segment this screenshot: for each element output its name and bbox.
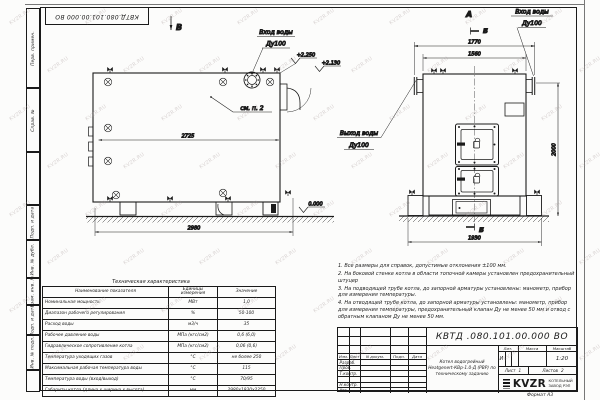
front-inlet-label: Вход воды bbox=[515, 9, 549, 16]
dim-front-body: 1560 bbox=[468, 52, 481, 58]
spec-cell: Температура уходящих газов bbox=[43, 353, 169, 364]
grid-line bbox=[338, 336, 426, 337]
spec-cell: 0,6 (6,0) bbox=[218, 331, 276, 342]
signature-row-label: Н.контр. bbox=[340, 382, 358, 387]
side-inlet-dn: Ду100 bbox=[265, 41, 286, 48]
grid-line bbox=[511, 351, 512, 366]
technical-notes: 1. Все размеры для справок, допустимые о… bbox=[338, 263, 578, 322]
spec-row: Температура уходящих газов°Сне более 250 bbox=[43, 353, 276, 364]
spec-cell: не более 250 bbox=[218, 353, 276, 364]
grid-line bbox=[498, 374, 578, 375]
note-item: 1. Все размеры для справок, допустимые о… bbox=[338, 263, 578, 270]
side-inlet-label: Вход воды bbox=[259, 29, 293, 36]
grid-line bbox=[408, 328, 409, 393]
spec-header-cell: Значение bbox=[218, 287, 276, 298]
grid-line bbox=[390, 328, 391, 393]
spec-cell: Температура воды (вход/выход) bbox=[43, 375, 169, 386]
spec-cell: Номинальная мощность bbox=[43, 298, 169, 309]
dim-side-inner: 2725 bbox=[182, 134, 195, 140]
titleblock-doc-number: КВТД .080.101.00.000 ВО bbox=[426, 328, 578, 345]
grid-line bbox=[498, 345, 499, 393]
spec-table: Наименование показателяЕдиницы измерения… bbox=[42, 286, 276, 397]
spec-row: Гидравлическое сопротивление котлаМПа (к… bbox=[43, 342, 276, 353]
sheet-value: 1 bbox=[518, 368, 521, 373]
revision-header-label: Подп. bbox=[393, 354, 405, 359]
scale-value: 1:20 bbox=[546, 351, 578, 366]
product-line-3: техническому заданию bbox=[436, 372, 489, 378]
view-label-b: В bbox=[176, 23, 182, 32]
spec-header-cell: Единицы измерения bbox=[169, 287, 218, 298]
spec-cell: 70/95 bbox=[218, 375, 276, 386]
spec-cell: % bbox=[169, 309, 218, 320]
elevation-zero: 0.000 bbox=[308, 202, 322, 208]
note-item: 2. На боковой стенке котла в области топ… bbox=[338, 271, 578, 284]
spec-cell: Расход воды bbox=[43, 320, 169, 331]
spec-cell: 2980х1930х2250 bbox=[218, 386, 276, 397]
front-outlet-dn: Ду100 bbox=[348, 142, 369, 149]
spec-cell: 0,06 (0,6) bbox=[218, 342, 276, 353]
signature-row-label: Утв. bbox=[340, 388, 349, 393]
grid-line bbox=[426, 345, 578, 346]
dim-front-height: 2000 bbox=[552, 143, 558, 156]
spec-table-title: Техническая характеристика bbox=[42, 279, 260, 285]
front-inlet-dn: Ду100 bbox=[521, 20, 542, 27]
company-name-line1: КОТЕЛЬНЫЙ bbox=[548, 379, 572, 383]
spec-row: Габариты котла (длина х ширина х высота)… bbox=[43, 386, 276, 397]
sheet-label: Лист bbox=[505, 368, 516, 373]
sheets-cell: Листов 2 bbox=[528, 366, 578, 374]
spec-cell: Рабочее давление воды bbox=[43, 331, 169, 342]
company-name: КОТЕЛЬНЫЙ ЗАВОД РЭП bbox=[548, 379, 572, 388]
signature-row-label: Разраб. bbox=[340, 360, 356, 365]
elevation-top: +2.250 bbox=[297, 53, 316, 59]
spec-cell: Гидравлическое сопротивление котла bbox=[43, 342, 169, 353]
sheets-value: 2 bbox=[561, 368, 564, 373]
view-side-dimensions: 2725 2980 +2.250 +2.130 0.000 см. п. 2 В… bbox=[95, 16, 341, 236]
dim-front-flanges: 1770 bbox=[468, 40, 481, 46]
spec-cell: м3/ч bbox=[169, 320, 218, 331]
spec-cell: Диапазон рабочего регулирования bbox=[43, 309, 169, 320]
view-side-ground bbox=[86, 217, 334, 223]
spec-cell: °С bbox=[169, 353, 218, 364]
signature-row-label: Пров. bbox=[340, 365, 352, 370]
grid-line bbox=[498, 366, 578, 367]
section-mark-bottom: Б bbox=[479, 226, 484, 234]
title-block: КВТД .080.101.00.000 ВО Котел водогрейны… bbox=[337, 327, 578, 392]
view-label-a: А bbox=[465, 10, 472, 19]
spec-cell: Максимальная рабочая температура воды bbox=[43, 364, 169, 375]
spec-cell: 50-100 bbox=[218, 309, 276, 320]
section-mark-top: Б bbox=[483, 27, 488, 35]
grid-line bbox=[338, 376, 426, 377]
spec-cell: МВт bbox=[169, 298, 218, 309]
spec-row: Рабочее давление водыМПа (кгс/см2)0,6 (6… bbox=[43, 331, 276, 342]
spec-row: Диапазон рабочего регулирования%50-100 bbox=[43, 309, 276, 320]
spec-cell: 115 bbox=[218, 364, 276, 375]
format-note: Формат А3 bbox=[527, 393, 553, 398]
grid-line bbox=[498, 351, 578, 352]
view-side-fittings bbox=[104, 67, 291, 202]
lit-value: И bbox=[498, 351, 505, 366]
logo-text: KVZR bbox=[513, 378, 546, 390]
spec-row: Номинальная мощностьМВт1,0 bbox=[43, 298, 276, 309]
see-note-callout: см. п. 2 bbox=[240, 105, 263, 112]
company-logo: KVZR КОТЕЛЬНЫЙ ЗАВОД РЭП bbox=[498, 374, 578, 393]
grid-line bbox=[505, 351, 506, 366]
revision-header-label: Изм. bbox=[339, 354, 348, 359]
lower-furnace-door bbox=[456, 167, 499, 197]
grid-line bbox=[528, 366, 529, 374]
note-item: 3. На подводящей трубе котла, до запорно… bbox=[338, 286, 578, 299]
front-outlet-label: Выход воды bbox=[340, 130, 378, 137]
note-item: 4. На отводящей трубе котла, до запорной… bbox=[338, 300, 578, 320]
sheets-label: Листов bbox=[542, 368, 558, 373]
view-side-boiler-body bbox=[89, 73, 312, 215]
spec-row: Температура воды (вход/выход)°С70/95 bbox=[43, 375, 276, 386]
revision-header-label: Лист bbox=[350, 354, 360, 359]
view-front-boiler-body bbox=[408, 66, 542, 222]
spec-cell: МПа (кгс/см2) bbox=[169, 342, 218, 353]
view-front-ground bbox=[399, 216, 549, 222]
spec-cell: МПа (кгс/см2) bbox=[169, 331, 218, 342]
upper-furnace-door bbox=[456, 124, 499, 165]
company-name-line2: ЗАВОД РЭП bbox=[548, 384, 572, 388]
spec-row: Расход водым3/ч35 bbox=[43, 320, 276, 331]
elevation-mid: +2.130 bbox=[322, 61, 341, 67]
spec-cell: °С bbox=[169, 364, 218, 375]
spec-cell: мм bbox=[169, 386, 218, 397]
titleblock-product-name: Котел водогрейный Heatgenert-КВр-1.0-Д (… bbox=[426, 345, 498, 393]
grid-line bbox=[338, 345, 426, 346]
grid-line bbox=[546, 345, 547, 366]
grid-line bbox=[518, 345, 519, 366]
spec-cell: 1,0 bbox=[218, 298, 276, 309]
grid-line bbox=[360, 328, 361, 393]
revision-header-label: N докум. bbox=[366, 354, 384, 359]
sheet-cell: Лист 1 bbox=[498, 366, 528, 374]
spec-row: Максимальная рабочая температура воды°С1… bbox=[43, 364, 276, 375]
dim-front-base: 1930 bbox=[468, 236, 481, 242]
logo-stripes-icon bbox=[503, 379, 510, 389]
dim-side-overall: 2980 bbox=[188, 226, 201, 232]
spec-cell: Габариты котла (длина х ширина х высота) bbox=[43, 386, 169, 397]
revision-header-label: Дата bbox=[412, 354, 422, 359]
spec-header-cell: Наименование показателя bbox=[43, 287, 169, 298]
inlet-flange bbox=[244, 72, 260, 88]
signature-row-label: Т.контр. bbox=[340, 371, 358, 376]
grid-line bbox=[426, 328, 427, 393]
drawing-sheet: Перв. примен.Справ. №Подп. и датаИнв. № … bbox=[0, 0, 600, 400]
spec-cell: 35 bbox=[218, 320, 276, 331]
spec-cell: °С bbox=[169, 375, 218, 386]
